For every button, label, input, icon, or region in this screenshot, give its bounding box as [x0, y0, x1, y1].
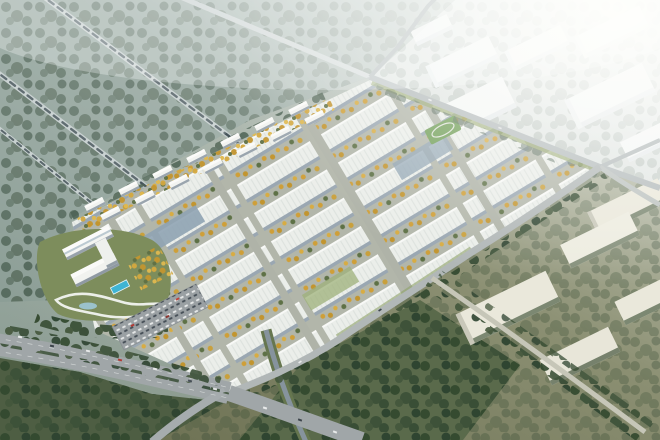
aerial-rendering	[0, 0, 660, 440]
sun-haze	[0, 0, 660, 440]
